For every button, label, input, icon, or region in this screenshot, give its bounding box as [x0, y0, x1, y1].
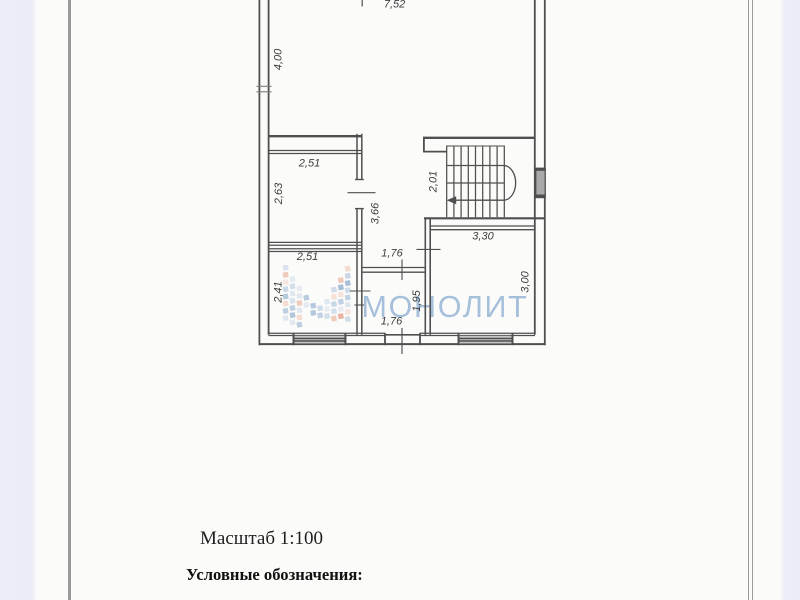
svg-text:2,51: 2,51 [296, 251, 318, 263]
svg-text:1,95: 1,95 [411, 289, 423, 311]
svg-text:4,00: 4,00 [273, 48, 285, 70]
svg-text:3,66: 3,66 [370, 202, 382, 224]
svg-text:2,41: 2,41 [273, 281, 285, 303]
svg-text:2,63: 2,63 [273, 182, 285, 205]
svg-text:2,51: 2,51 [298, 158, 320, 170]
svg-text:2,01: 2,01 [428, 171, 440, 193]
svg-text:7,52: 7,52 [384, 0, 405, 10]
svg-text:1,76: 1,76 [381, 248, 403, 260]
svg-text:1,76: 1,76 [381, 316, 403, 328]
svg-text:3,30: 3,30 [472, 231, 494, 243]
svg-text:3,00: 3,00 [520, 270, 532, 292]
